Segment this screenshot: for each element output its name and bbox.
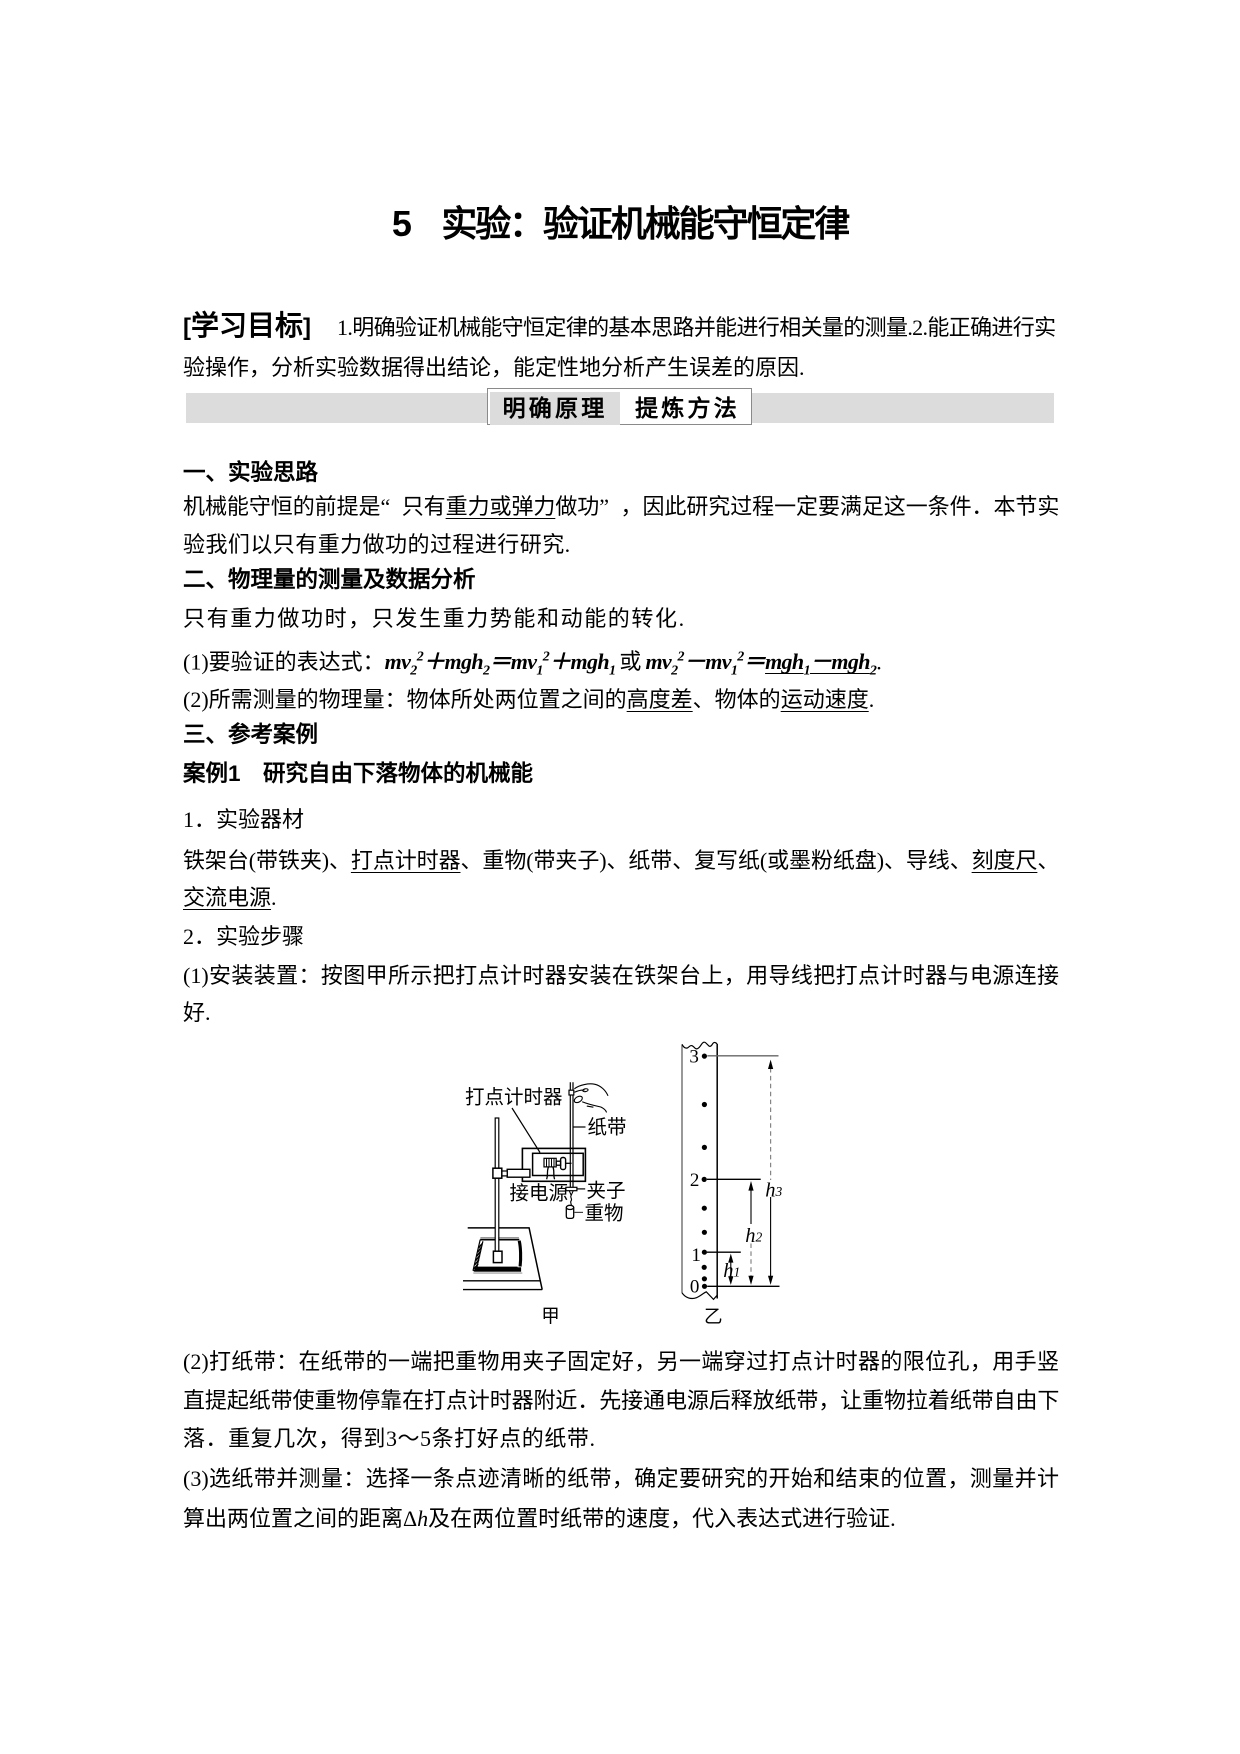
svg-text:夹子: 夹子 [587,1180,626,1202]
svg-text:打点计时器: 打点计时器 [465,1087,563,1109]
svg-text:0: 0 [690,1277,700,1298]
svg-text:h3: h3 [765,1180,782,1202]
svg-text:2: 2 [690,1170,700,1191]
svg-text:接电源: 接电源 [510,1183,569,1205]
svg-text:h2: h2 [745,1225,762,1247]
svg-text:乙: 乙 [704,1308,723,1328]
svg-text:重物: 重物 [585,1202,624,1224]
svg-text:甲: 甲 [541,1308,560,1328]
svg-text:1: 1 [691,1245,701,1266]
svg-text:h1: h1 [723,1260,740,1282]
svg-text:3: 3 [689,1047,699,1068]
svg-text:纸带: 纸带 [588,1117,627,1139]
